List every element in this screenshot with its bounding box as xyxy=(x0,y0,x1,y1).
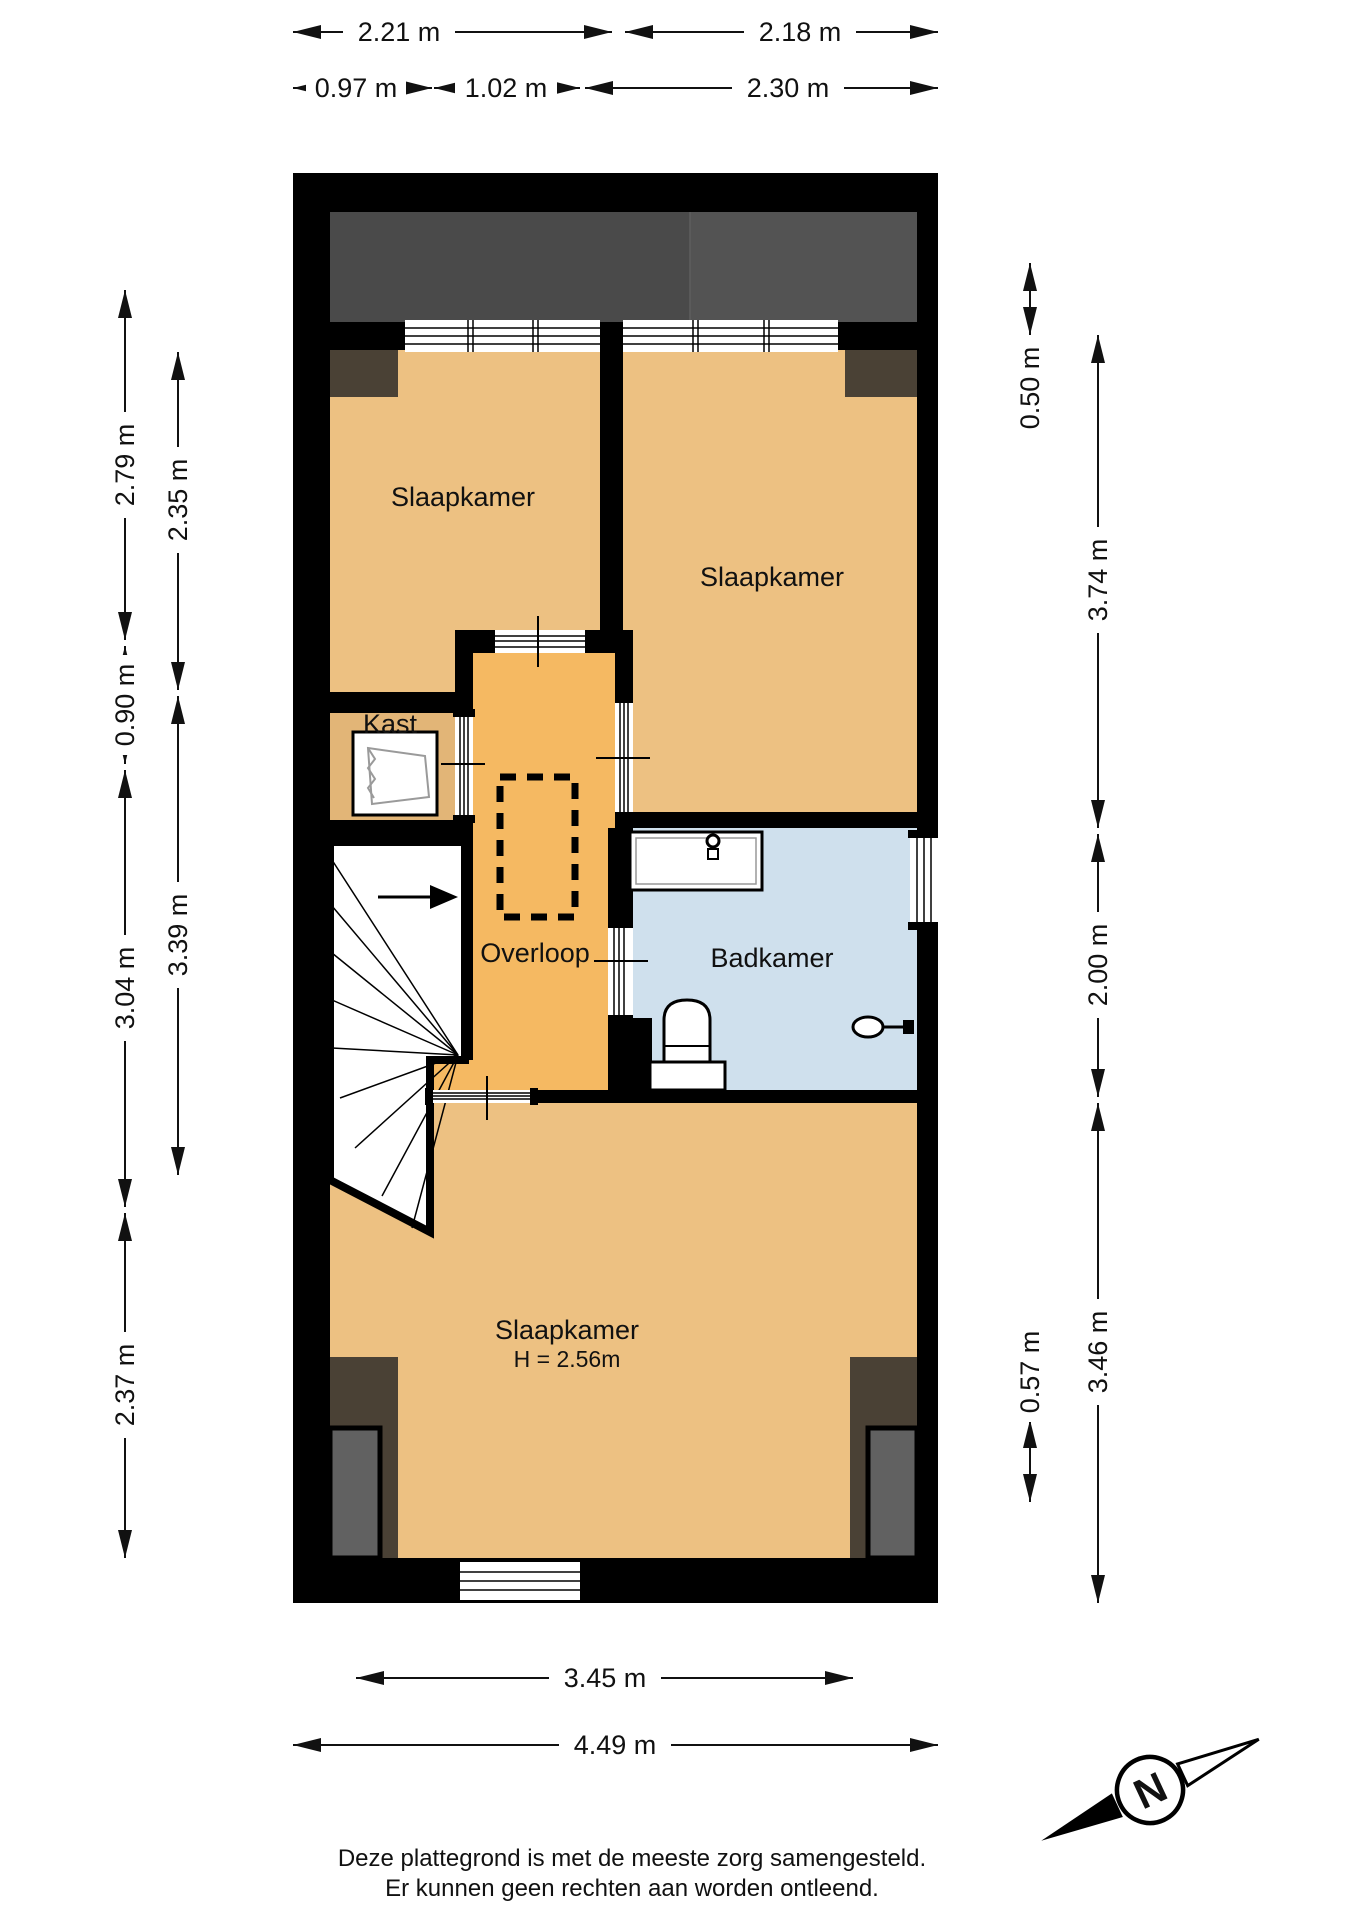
dim-label: 2.21 m xyxy=(358,17,441,47)
dim-bottom-449: 4.49 m xyxy=(293,1729,938,1761)
dim-left-090: 0.90 m xyxy=(109,646,141,764)
disclaimer-line-2: Er kunnen geen rechten aan worden ontlee… xyxy=(385,1875,879,1902)
dim-label: 0.90 m xyxy=(110,664,140,747)
label-closet: Kast xyxy=(363,709,418,739)
floorplan-page: Slaapkamer Slaapkamer Kast Overloop Badk… xyxy=(0,0,1358,1920)
disclaimer-line-1: Deze plattegrond is met de meeste zorg s… xyxy=(338,1845,926,1872)
dormer-bottom-left-inner xyxy=(330,1428,380,1558)
dim-left-279: 2.79 m xyxy=(109,290,141,640)
bath-tap-icon xyxy=(707,835,719,847)
roof-strip-left xyxy=(330,212,690,322)
dim-right-200: 2.00 m xyxy=(1082,834,1114,1097)
dim-label: 3.39 m xyxy=(163,894,193,977)
dim-label: 3.45 m xyxy=(564,1663,647,1693)
window-bathroom xyxy=(908,830,938,930)
dim-right-374: 3.74 m xyxy=(1082,335,1114,828)
dim-left-235: 2.35 m xyxy=(162,352,194,690)
dim-label: 1.02 m xyxy=(465,73,548,103)
dim-top-097: 0.97 m xyxy=(293,72,432,104)
label-bedroom-top-left: Slaapkamer xyxy=(391,482,535,512)
dim-top-230: 2.30 m xyxy=(585,72,938,104)
dim-label: 3.74 m xyxy=(1083,539,1113,622)
dim-left-339: 3.39 m xyxy=(162,696,194,1175)
dim-top-218: 2.18 m xyxy=(625,16,938,48)
disclaimer: Deze plattegrond is met de meeste zorg s… xyxy=(338,1845,926,1902)
dormer-bottom-right-inner xyxy=(868,1428,917,1558)
roof-strip-right xyxy=(690,212,917,322)
dim-top-221: 2.21 m xyxy=(293,16,612,48)
compass-icon: N xyxy=(1027,1709,1272,1870)
dim-label: 3.46 m xyxy=(1083,1311,1113,1394)
dim-right-050: 0.50 m xyxy=(1014,263,1046,438)
label-bedroom-top-right: Slaapkamer xyxy=(700,562,844,592)
dim-label: 0.57 m xyxy=(1015,1331,1045,1414)
dim-left-304: 3.04 m xyxy=(109,770,141,1207)
bathtub-icon xyxy=(630,832,762,890)
dim-right-057: 0.57 m xyxy=(1014,1322,1046,1502)
label-bedroom-bottom-height: H = 2.56m xyxy=(514,1346,621,1372)
roof-strip xyxy=(330,212,917,322)
dim-label: 2.37 m xyxy=(110,1344,140,1427)
dim-label: 3.04 m xyxy=(110,947,140,1030)
window-bedroom-bottom xyxy=(460,1562,580,1600)
dim-label: 2.35 m xyxy=(163,459,193,542)
dim-label: 4.49 m xyxy=(574,1730,657,1760)
dim-bottom-345: 3.45 m xyxy=(356,1662,853,1694)
label-bathroom: Badkamer xyxy=(710,943,833,973)
dormer-top-left xyxy=(330,350,398,397)
label-landing: Overloop xyxy=(480,938,590,968)
dim-label: 0.97 m xyxy=(315,73,398,103)
dim-label: 2.18 m xyxy=(759,17,842,47)
compass-south-needle xyxy=(1036,1793,1123,1852)
window-bedroom-top-right xyxy=(623,320,838,352)
dim-top-102: 1.02 m xyxy=(434,72,580,104)
dormer-top-right xyxy=(845,350,917,397)
floor-plan-svg: Slaapkamer Slaapkamer Kast Overloop Badk… xyxy=(0,0,1358,1920)
dim-left-237: 2.37 m xyxy=(109,1213,141,1558)
dim-label: 2.30 m xyxy=(747,73,830,103)
window-bedroom-top-left xyxy=(405,320,600,352)
dim-label: 2.79 m xyxy=(110,424,140,507)
label-bedroom-bottom: Slaapkamer xyxy=(495,1315,639,1345)
dim-label: 0.50 m xyxy=(1015,347,1045,430)
dim-right-346: 3.46 m xyxy=(1082,1103,1114,1603)
compass-north-needle xyxy=(1178,1728,1264,1785)
dim-label: 2.00 m xyxy=(1083,924,1113,1007)
closet-wardrobe-icon xyxy=(353,732,437,815)
